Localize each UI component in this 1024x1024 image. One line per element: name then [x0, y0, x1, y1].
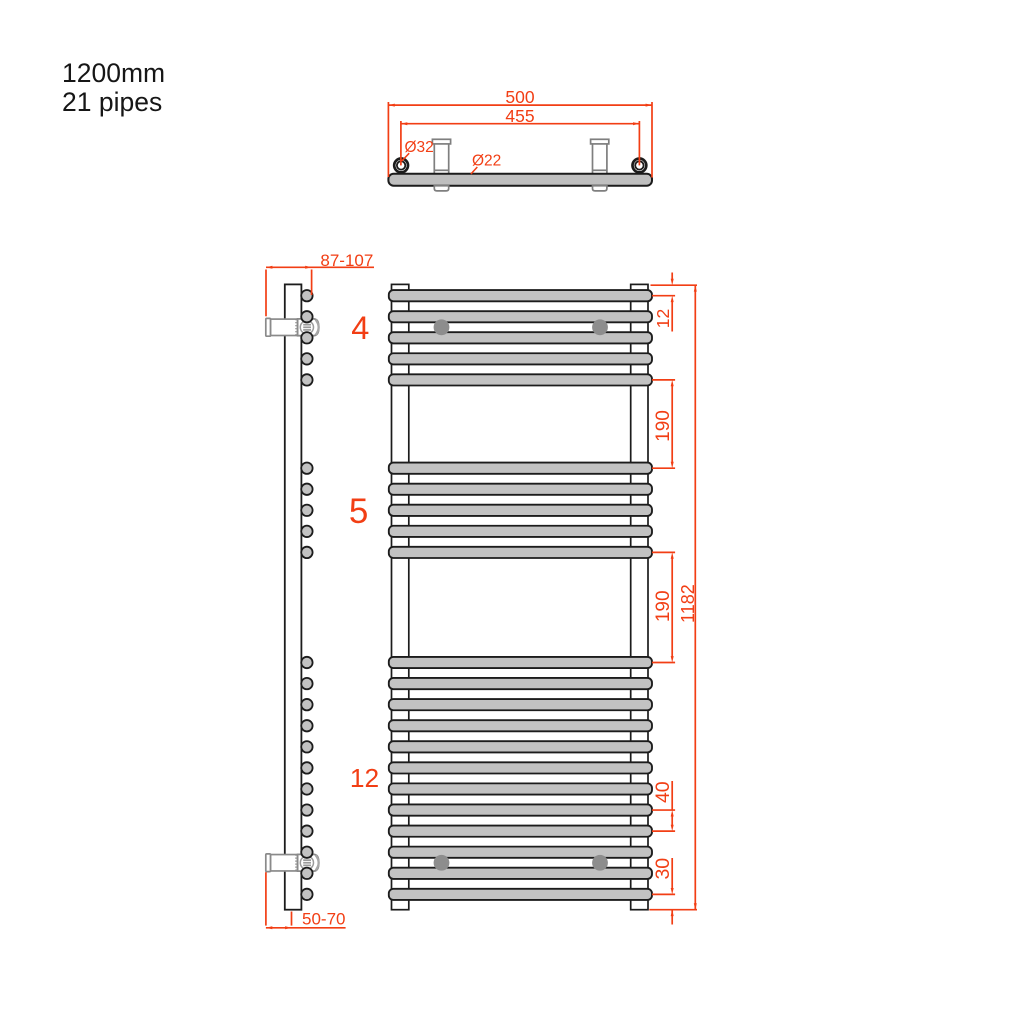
svg-text:455: 455 — [505, 106, 534, 126]
svg-text:190: 190 — [653, 410, 674, 442]
svg-text:21 pipes: 21 pipes — [62, 87, 162, 117]
svg-text:1182: 1182 — [678, 584, 698, 623]
svg-text:190: 190 — [653, 590, 674, 622]
svg-text:12: 12 — [350, 763, 379, 793]
svg-text:50-70: 50-70 — [302, 910, 345, 929]
svg-text:500: 500 — [505, 87, 534, 107]
svg-text:40: 40 — [652, 781, 674, 803]
svg-text:4: 4 — [351, 310, 369, 346]
svg-text:5: 5 — [349, 492, 368, 531]
svg-text:87-107: 87-107 — [320, 251, 373, 270]
svg-text:12: 12 — [653, 309, 673, 328]
svg-text:1200mm: 1200mm — [62, 58, 165, 88]
svg-text:30: 30 — [652, 858, 674, 880]
